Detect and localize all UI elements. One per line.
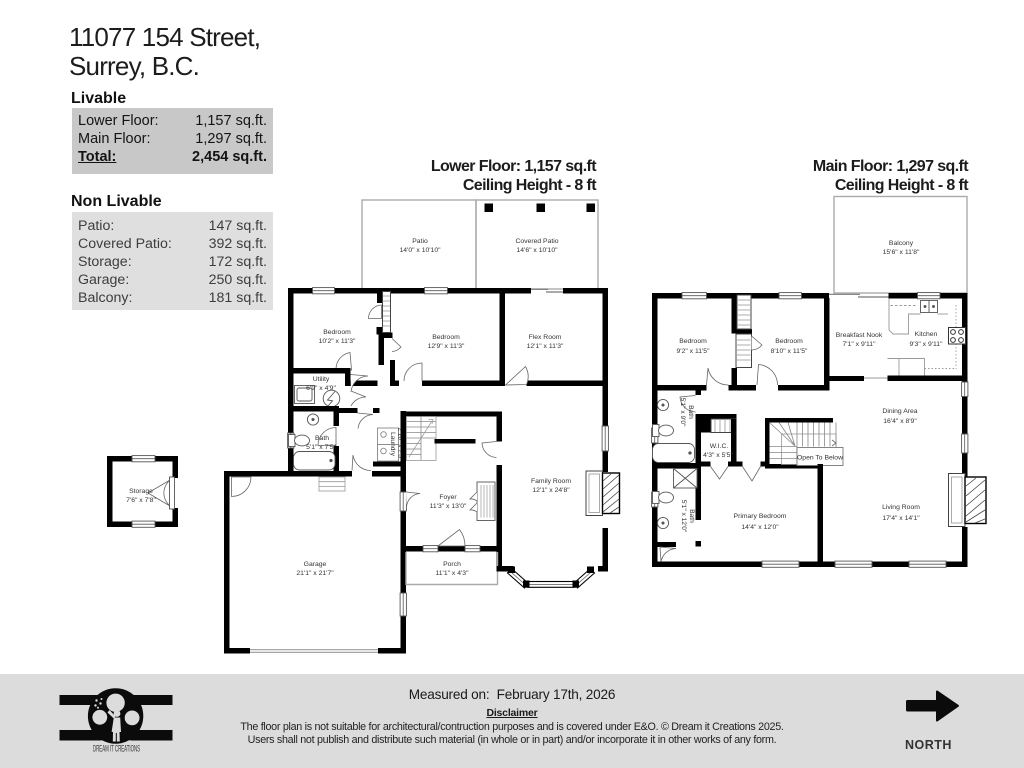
svg-text:Flex Room: Flex Room bbox=[529, 334, 562, 341]
svg-text:DREAM IT CREATIONS: DREAM IT CREATIONS bbox=[93, 744, 140, 755]
svg-text:6'9" x 4'9": 6'9" x 4'9" bbox=[306, 385, 336, 392]
svg-text:Porch: Porch bbox=[443, 561, 461, 568]
svg-text:5'1" x 9'0": 5'1" x 9'0" bbox=[679, 398, 686, 427]
svg-text:Storage: Storage bbox=[129, 488, 153, 495]
svg-text:9'2" x 11'5": 9'2" x 11'5" bbox=[677, 348, 711, 355]
svg-text:Balcony: Balcony bbox=[889, 240, 914, 247]
svg-text:Family Room: Family Room bbox=[531, 478, 571, 485]
svg-text:12'1" x 11'3": 12'1" x 11'3" bbox=[527, 343, 564, 350]
svg-text:NORTH: NORTH bbox=[905, 738, 952, 752]
svg-text:4'3" x 5'5": 4'3" x 5'5" bbox=[703, 452, 733, 459]
svg-text:11'1" x 4'3": 11'1" x 4'3" bbox=[436, 570, 470, 577]
svg-text:21'1" x 21'7": 21'1" x 21'7" bbox=[296, 570, 334, 577]
svg-text:Covered Patio: Covered Patio bbox=[515, 238, 558, 245]
svg-text:Bedroom: Bedroom bbox=[432, 334, 460, 341]
svg-text:16'4" x 8'9": 16'4" x 8'9" bbox=[883, 418, 917, 425]
svg-text:Patio: Patio bbox=[412, 238, 428, 245]
svg-text:14'0" x 10'10": 14'0" x 10'10" bbox=[399, 247, 441, 254]
svg-text:14'4" x 12'0": 14'4" x 12'0" bbox=[741, 524, 779, 531]
svg-text:Kitchen: Kitchen bbox=[915, 331, 938, 338]
svg-text:15'6" x 11'8": 15'6" x 11'8" bbox=[883, 249, 920, 256]
svg-text:17'4" x 14'1": 17'4" x 14'1" bbox=[882, 515, 920, 522]
svg-text:11'3" x 13'0": 11'3" x 13'0" bbox=[430, 503, 467, 510]
svg-text:5'1" x 12'0": 5'1" x 12'0" bbox=[680, 500, 687, 533]
svg-text:Bath: Bath bbox=[687, 405, 694, 419]
svg-text:14'6" x 10'10": 14'6" x 10'10" bbox=[516, 247, 558, 254]
svg-text:Bedroom: Bedroom bbox=[323, 329, 351, 336]
svg-text:Open To Below: Open To Below bbox=[797, 455, 843, 462]
svg-text:Living Room: Living Room bbox=[882, 504, 920, 511]
svg-text:Utility: Utility bbox=[313, 376, 330, 383]
svg-text:Bath: Bath bbox=[315, 435, 329, 442]
svg-text:12'1" x 24'8": 12'1" x 24'8" bbox=[532, 487, 570, 494]
svg-text:10'2" x 11'3": 10'2" x 11'3" bbox=[319, 338, 356, 345]
svg-text:7'6" x 7'8": 7'6" x 7'8" bbox=[126, 497, 156, 504]
svg-text:Foyer: Foyer bbox=[439, 494, 457, 501]
svg-text:Garage: Garage bbox=[304, 561, 327, 568]
svg-text:5'1" x 7'5": 5'1" x 7'5" bbox=[306, 444, 336, 451]
svg-text:12'9" x 11'3": 12'9" x 11'3" bbox=[428, 343, 465, 350]
svg-text:8'10" x 11'5": 8'10" x 11'5" bbox=[771, 348, 808, 355]
svg-text:Bedroom: Bedroom bbox=[775, 338, 803, 345]
svg-text:Bath: Bath bbox=[688, 509, 695, 523]
svg-text:Laundry: Laundry bbox=[389, 432, 396, 457]
svg-text:9'3" x 9'11": 9'3" x 9'11" bbox=[910, 341, 944, 348]
svg-text:Primary Bedroom: Primary Bedroom bbox=[734, 513, 787, 520]
svg-text:7'1" x 9'11": 7'1" x 9'11" bbox=[843, 341, 877, 348]
svg-text:Breakfast Nook: Breakfast Nook bbox=[836, 332, 883, 339]
svg-text:Dining Area: Dining Area bbox=[882, 408, 917, 415]
svg-text:Bedroom: Bedroom bbox=[679, 338, 707, 345]
svg-text:W.I.C.: W.I.C. bbox=[710, 443, 729, 450]
